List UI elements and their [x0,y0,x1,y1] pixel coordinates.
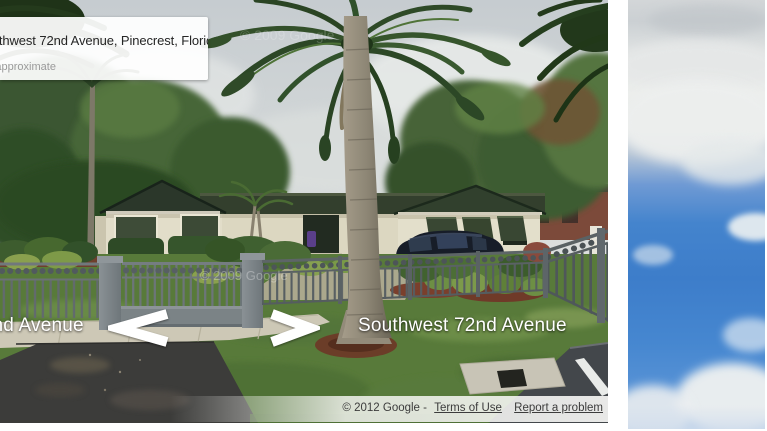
sky-image [628,0,765,429]
pan-left-arrow-icon[interactable] [108,306,174,350]
page: © 2009 Google © 2009 Google Southwest 72… [0,0,767,431]
street-view-panorama[interactable]: © 2009 Google © 2009 Google Southwest 72… [0,0,608,423]
address-title: Southwest 72nd Avenue, Pinecrest, Florid… [0,33,208,48]
cloud [728,213,765,241]
attribution-bar: © 2012 Google - Terms of Use Report a pr… [170,396,608,422]
terms-of-use-link[interactable]: Terms of Use [434,402,502,414]
address-subtitle: Address is approximate [0,61,56,73]
cloud [648,5,765,35]
cloud [723,318,765,352]
copyright-text: © 2012 Google - [342,402,427,414]
street-label-center: Southwest 72nd Avenue [358,315,567,337]
address-info-card: Southwest 72nd Avenue, Pinecrest, Florid… [0,17,208,80]
cloud-haze [628,405,765,429]
street-label-left: Southwest 72nd Avenue [0,315,84,337]
report-a-problem-link[interactable]: Report a problem [514,402,603,414]
cloud [633,245,673,265]
cloud [683,140,765,185]
pan-right-arrow-icon[interactable] [264,306,320,350]
